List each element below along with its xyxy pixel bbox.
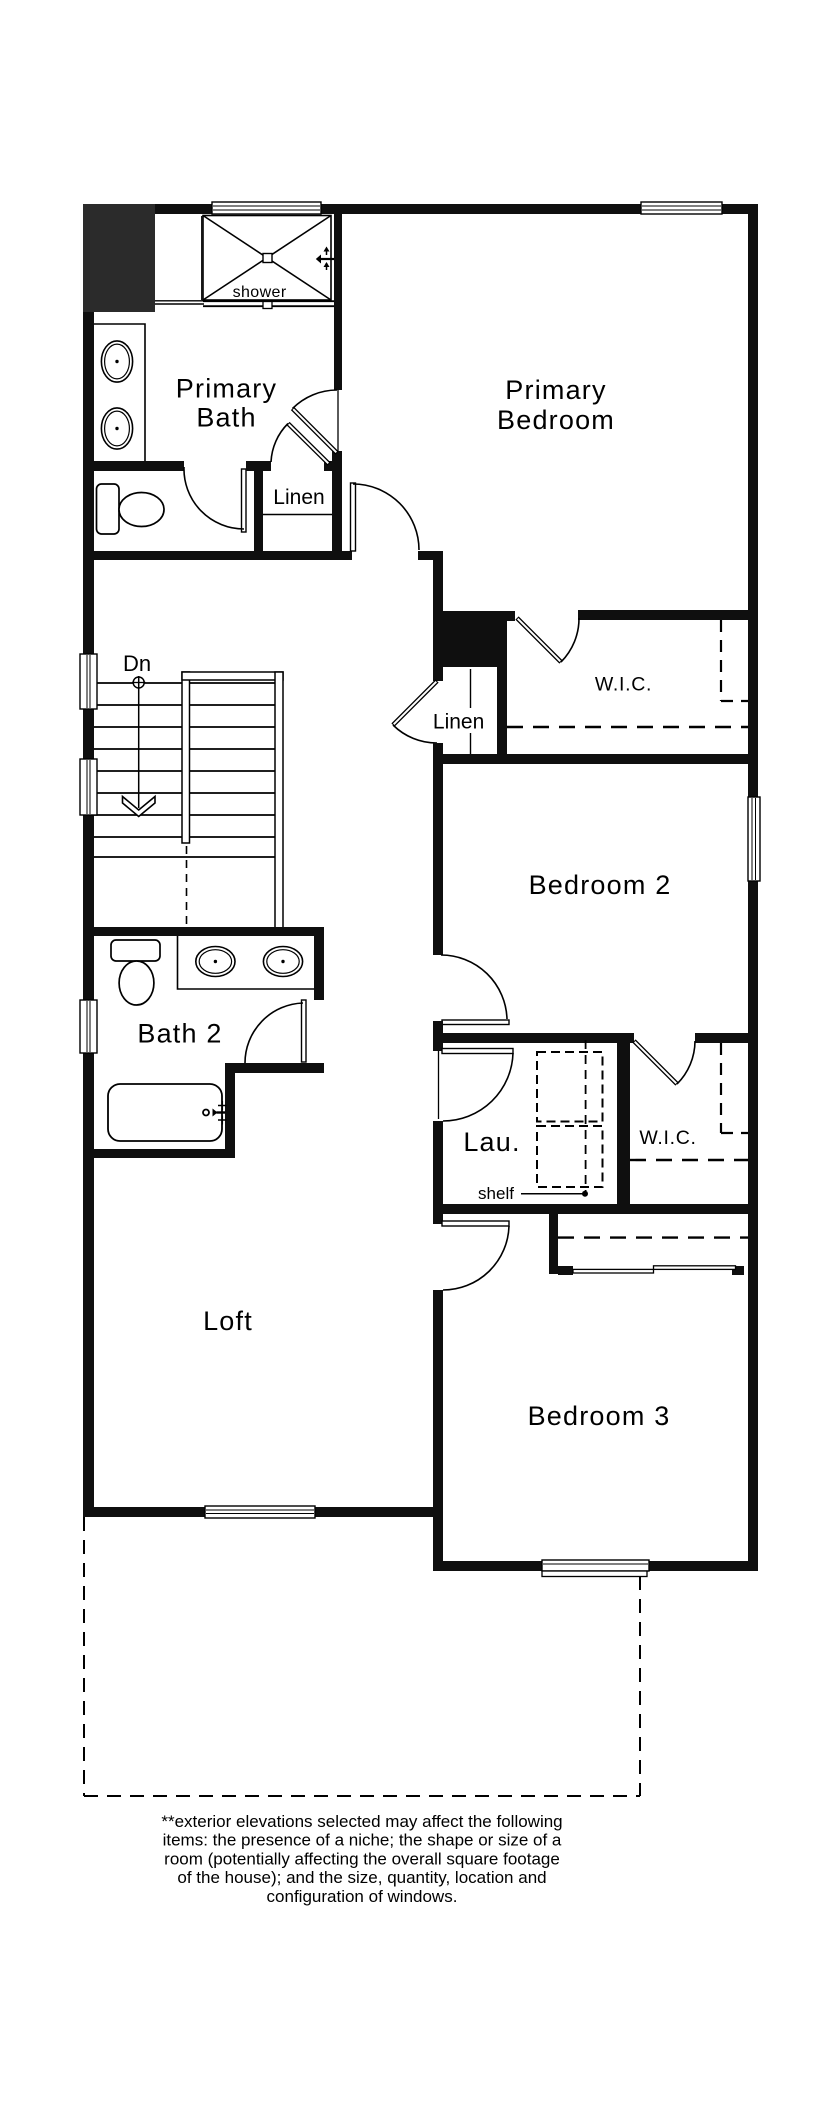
svg-text:Linen: Linen — [433, 711, 484, 734]
svg-text:of the house); and the size, q: of the house); and the size, quantity, l… — [177, 1868, 546, 1887]
svg-text:Bedroom 3: Bedroom 3 — [528, 1401, 671, 1431]
svg-text:Dn: Dn — [123, 651, 151, 676]
svg-text:Lau.: Lau. — [463, 1127, 520, 1157]
svg-text:Linen: Linen — [273, 486, 324, 509]
svg-text:Bedroom 2: Bedroom 2 — [529, 870, 672, 900]
svg-text:Loft: Loft — [203, 1306, 253, 1336]
svg-text:Primary: Primary — [505, 375, 606, 405]
svg-text:Bath: Bath — [196, 403, 256, 433]
svg-text:items: the presence of a niche: items: the presence of a niche; the shap… — [163, 1831, 562, 1850]
svg-text:Primary: Primary — [176, 374, 277, 404]
svg-text:W.I.C.: W.I.C. — [595, 673, 652, 695]
svg-text:Bath 2: Bath 2 — [137, 1019, 222, 1049]
svg-text:configuration of windows.: configuration of windows. — [267, 1887, 458, 1906]
svg-text:shelf: shelf — [478, 1184, 514, 1203]
svg-text:**exterior elevations selected: **exterior elevations selected may affec… — [161, 1812, 562, 1831]
svg-text:Bedroom: Bedroom — [497, 405, 615, 435]
svg-text:room (potentially affecting th: room (potentially affecting the overall … — [164, 1849, 560, 1868]
svg-text:W.I.C.: W.I.C. — [639, 1127, 696, 1149]
svg-text:shower: shower — [233, 284, 287, 301]
